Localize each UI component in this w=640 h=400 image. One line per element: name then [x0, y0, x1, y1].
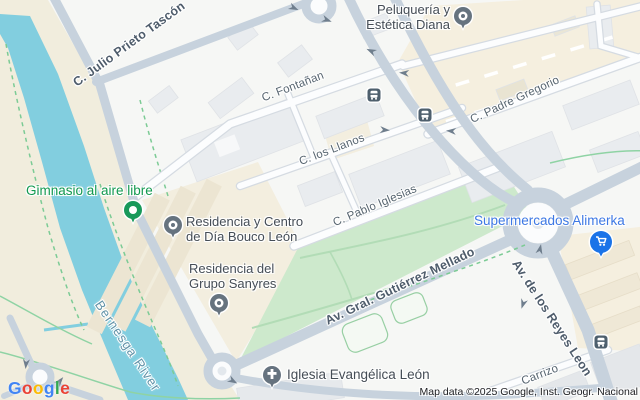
poi-label-line: Residencia del [189, 262, 276, 277]
google-logo-letter: G [8, 378, 22, 398]
poi-label-iglesia[interactable]: Iglesia Evangélica León [287, 368, 430, 383]
google-logo-letter: o [22, 378, 33, 398]
poi-label-line: Estética Diana [352, 18, 450, 33]
poi-label-gimnasio[interactable]: Gimnasio al aire libre [26, 184, 153, 199]
google-logo-letter: g [44, 378, 55, 398]
bus-stop-icon[interactable] [593, 334, 609, 350]
map-attribution: Map data ©2025 Google, Inst. Geogr. Naci… [420, 386, 638, 398]
poi-label-peluqueria[interactable]: Peluquería y Estética Diana [352, 3, 450, 32]
poi-label-line: Residencia y Centro [186, 215, 303, 230]
poi-label-line: Peluquería y [352, 3, 450, 18]
poi-label-alimerka[interactable]: Supermercados Alimerka [474, 214, 625, 229]
poi-label-line: de Día Bouco León [186, 230, 303, 245]
google-logo[interactable]: Google [8, 378, 70, 399]
poi-label-line: Grupo Sanyres [189, 277, 276, 292]
google-logo-letter: o [33, 378, 44, 398]
google-logo-letter: e [60, 378, 70, 398]
bus-stop-icon[interactable] [417, 107, 433, 123]
map-canvas[interactable]: C. Julio Prieto Tascón C. Fontañan C. lo… [0, 0, 640, 400]
bus-stop-icon[interactable] [366, 87, 382, 103]
poi-label-residencia-bouco[interactable]: Residencia y Centro de Día Bouco León [186, 215, 303, 244]
poi-label-residencia-sanyres[interactable]: Residencia del Grupo Sanyres [189, 262, 276, 291]
